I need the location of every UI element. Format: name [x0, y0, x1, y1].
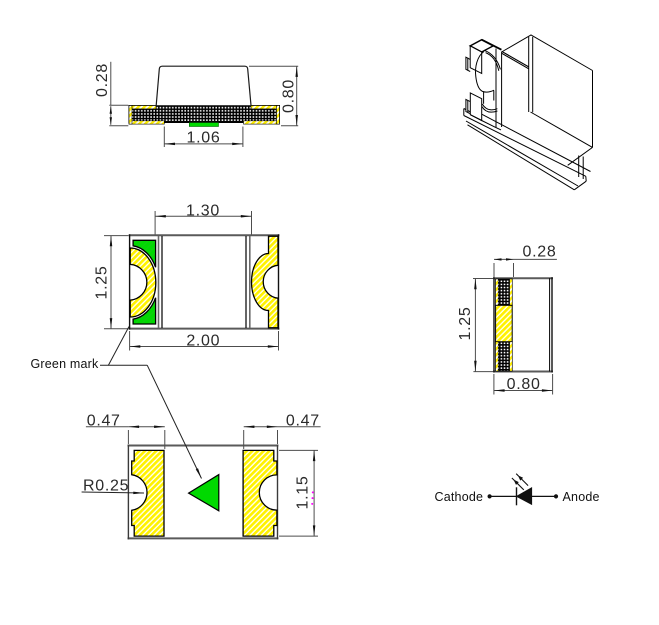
svg-text:0.47: 0.47: [87, 412, 121, 429]
svg-text:0.47: 0.47: [286, 412, 320, 429]
svg-text:1.25: 1.25: [457, 307, 474, 341]
svg-text:2.00: 2.00: [186, 332, 220, 349]
svg-text:0.80: 0.80: [507, 376, 541, 393]
svg-text:Green mark: Green mark: [31, 357, 100, 371]
svg-text:0.80: 0.80: [281, 79, 298, 113]
svg-text:1.15: 1.15: [295, 476, 312, 510]
svg-text:1.06: 1.06: [187, 130, 221, 147]
svg-text:0.28: 0.28: [523, 243, 557, 260]
svg-text:Cathode: Cathode: [435, 490, 484, 504]
svg-text:1.25: 1.25: [94, 266, 111, 300]
svg-text:Anode: Anode: [563, 490, 600, 504]
svg-text:0.28: 0.28: [94, 63, 111, 97]
svg-text:1.30: 1.30: [186, 202, 220, 219]
